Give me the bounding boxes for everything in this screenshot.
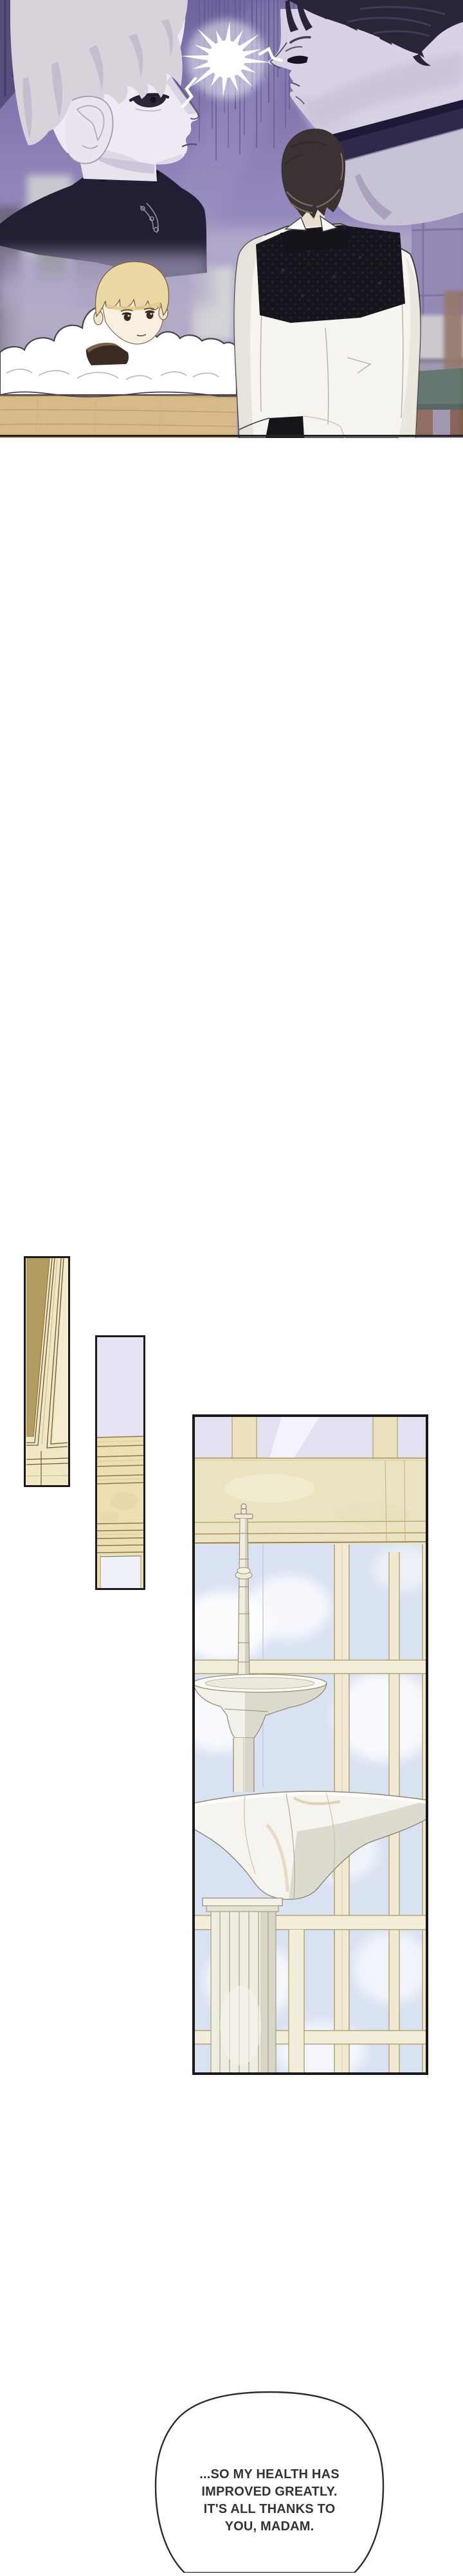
svg-text:YOU, MADAM.: YOU, MADAM. [225, 2519, 314, 2534]
svg-text:IMPROVED GREATLY.: IMPROVED GREATLY. [201, 2485, 337, 2499]
svg-text:IT'S ALL THANKS TO: IT'S ALL THANKS TO [204, 2502, 336, 2516]
svg-text:...SO MY HEALTH HAS: ...SO MY HEALTH HAS [199, 2467, 340, 2481]
